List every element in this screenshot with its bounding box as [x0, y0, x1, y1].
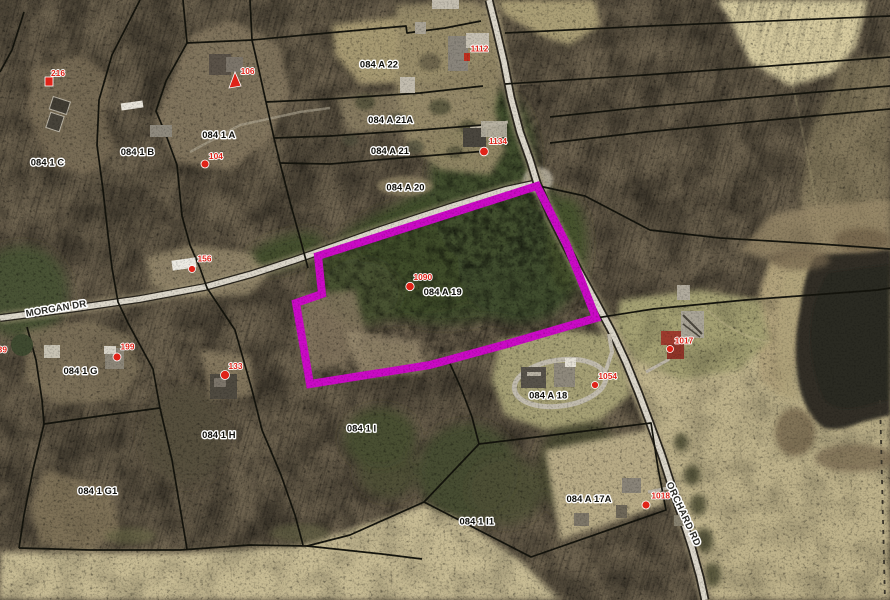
svg-text:1090: 1090 [413, 272, 432, 282]
svg-text:084 1 H: 084 1 H [202, 429, 236, 440]
svg-text:084 1 I1: 084 1 I1 [459, 516, 494, 527]
svg-text:1054: 1054 [598, 371, 617, 381]
svg-text:084 A 22: 084 A 22 [360, 59, 398, 70]
svg-text:084 A 20: 084 A 20 [386, 181, 424, 192]
svg-text:1134: 1134 [489, 136, 508, 146]
svg-text:139: 139 [0, 344, 7, 354]
svg-text:133: 133 [229, 361, 243, 371]
svg-text:084 1 I: 084 1 I [347, 423, 376, 434]
svg-text:084 1 A: 084 1 A [202, 129, 235, 140]
svg-text:084 A 17A: 084 A 17A [566, 493, 611, 504]
svg-text:199: 199 [121, 342, 135, 352]
svg-text:084 A 19: 084 A 19 [424, 286, 462, 297]
svg-text:084 A 21A: 084 A 21A [368, 114, 413, 125]
svg-text:084 A 21: 084 A 21 [371, 145, 409, 156]
svg-text:084 1 G: 084 1 G [63, 365, 97, 376]
svg-text:156: 156 [198, 254, 212, 264]
svg-text:1018: 1018 [651, 491, 670, 501]
svg-text:106: 106 [241, 66, 255, 76]
svg-text:104: 104 [209, 151, 223, 161]
svg-text:1017: 1017 [675, 336, 694, 346]
svg-text:084 1 B: 084 1 B [121, 146, 155, 157]
svg-text:216: 216 [51, 68, 65, 78]
svg-text:1112: 1112 [471, 44, 489, 54]
svg-text:084 1 G1: 084 1 G1 [78, 485, 117, 496]
svg-text:084 1 C: 084 1 C [31, 157, 65, 168]
svg-text:084 A 18: 084 A 18 [529, 389, 567, 400]
